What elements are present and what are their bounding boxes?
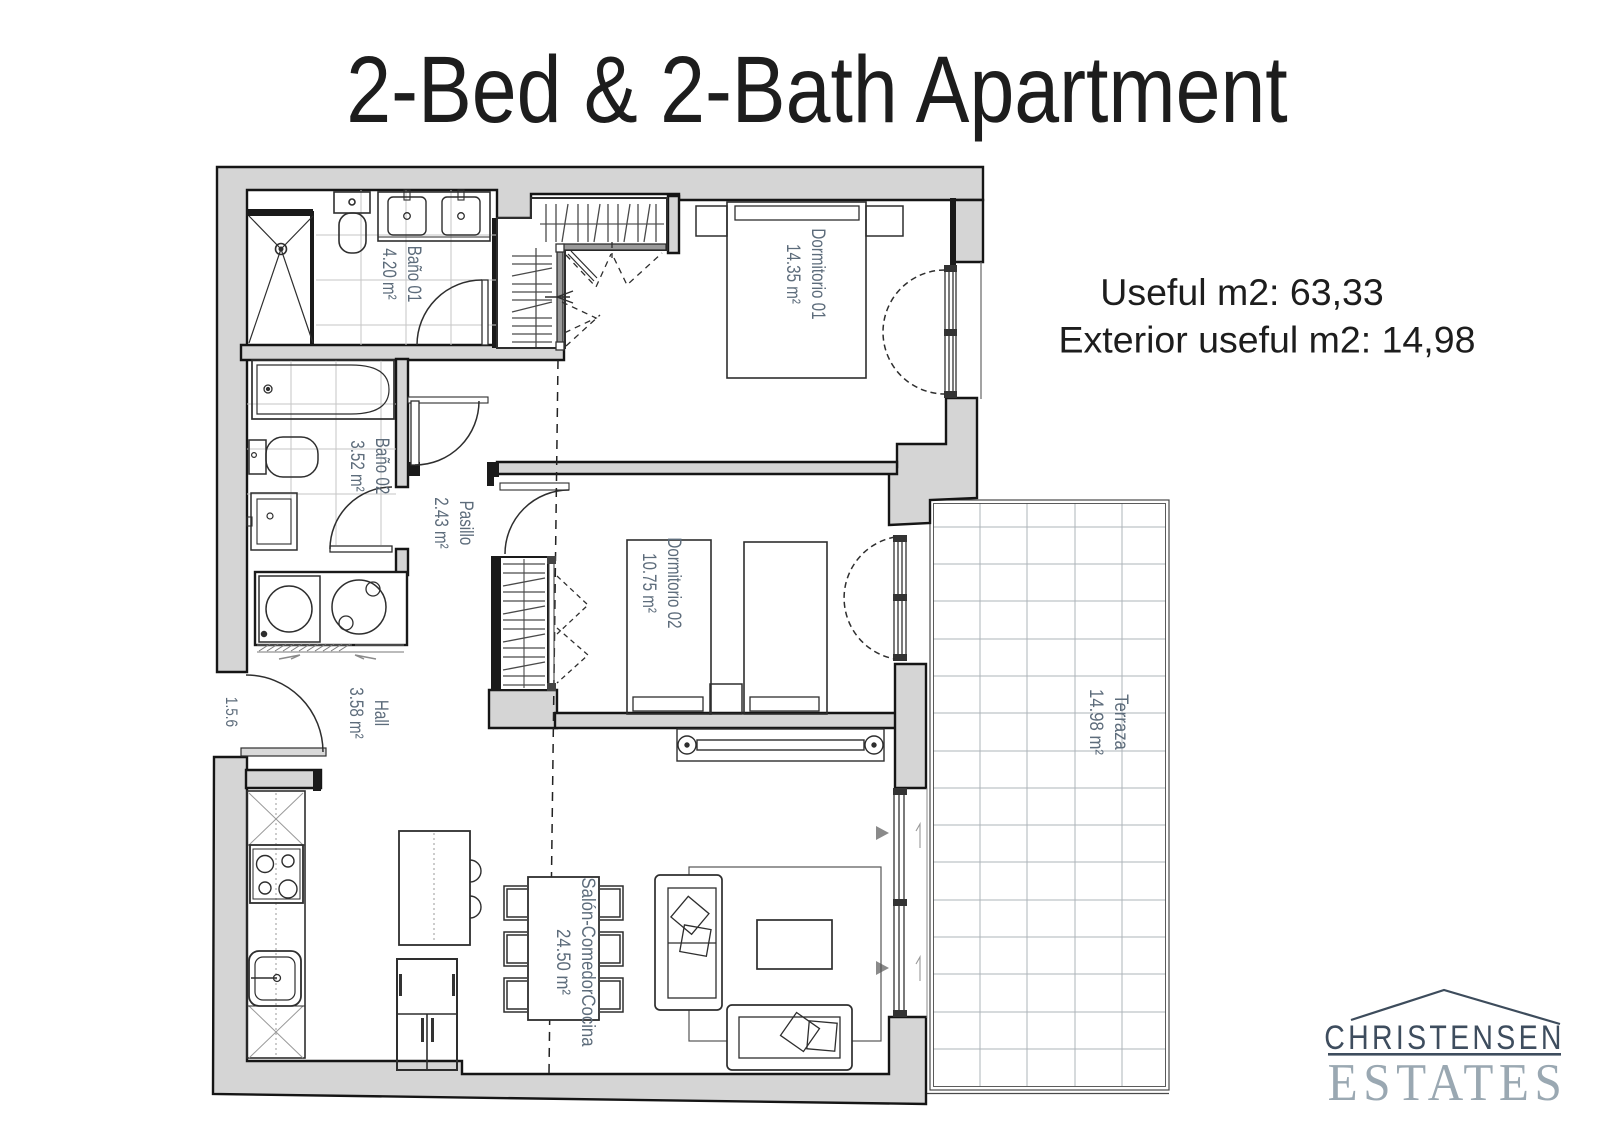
svg-text:3.52 m²: 3.52 m² (347, 440, 369, 492)
svg-text:Hall: Hall (371, 700, 393, 726)
svg-text:Dormitorio 02: Dormitorio 02 (664, 537, 686, 628)
svg-text:Baño 02: Baño 02 (372, 438, 394, 495)
svg-text:2-Bed & 2-Bath Apartment: 2-Bed & 2-Bath Apartment (346, 36, 1287, 143)
svg-text:10.75 m²: 10.75 m² (639, 553, 661, 613)
svg-text:14.35 m²: 14.35 m² (783, 244, 805, 304)
svg-text:2.43 m²: 2.43 m² (431, 497, 453, 549)
svg-text:4.20 m²: 4.20 m² (379, 248, 401, 300)
svg-text:Baño 01: Baño 01 (404, 246, 426, 303)
svg-text:Pasillo: Pasillo (456, 501, 478, 546)
svg-text:Salón-ComedorCocina: Salón-ComedorCocina (578, 878, 599, 1047)
svg-text:Useful m2: 63,33: Useful m2: 63,33 (1100, 271, 1383, 313)
svg-text:ESTATES: ESTATES (1328, 1053, 1568, 1112)
svg-text:3.58 m²: 3.58 m² (346, 687, 368, 739)
svg-text:1.5.6: 1.5.6 (222, 697, 241, 727)
svg-text:CHRISTENSEN: CHRISTENSEN (1324, 1017, 1564, 1056)
svg-text:14.98 m²: 14.98 m² (1086, 689, 1107, 755)
svg-text:Dormitorio 01: Dormitorio 01 (808, 228, 830, 319)
svg-text:Terraza: Terraza (1111, 694, 1132, 750)
svg-text:24.50 m²: 24.50 m² (553, 929, 574, 995)
svg-text:Exterior useful m2: 14,98: Exterior useful m2: 14,98 (1059, 319, 1476, 361)
